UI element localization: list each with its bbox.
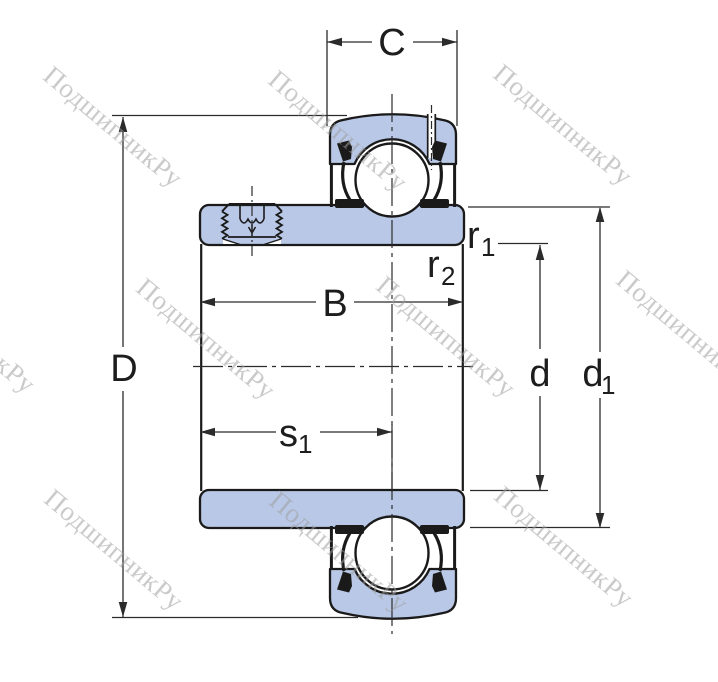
dim-s1: s 1 [200,413,392,459]
dim-D: D [110,116,358,618]
dim-d1-arrow-bottom [596,513,605,528]
dim-label-r2-sub: 2 [441,261,455,291]
dim-label-r1: r [467,215,480,257]
seal-bottom-left-lip [343,533,350,571]
dim-C-arrow-right [442,38,457,47]
dim-label-D: D [110,348,137,390]
dim-D-arrow-bottom [119,602,128,617]
dim-D-arrow-top [119,117,128,132]
dim-C-arrow-left [327,38,342,47]
dim-s1-arrow-right [377,428,392,437]
label-r2: r 2 [427,244,455,291]
dim-B: B [200,283,463,325]
dim-d: d [470,244,551,491]
dim-label-C: C [378,22,405,64]
dim-d1-arrow-top [596,207,605,222]
bearing-parts [193,94,473,634]
dim-d-arrow-top [536,245,545,260]
bearing-cross-section-drawing: C D B s 1 [0,0,718,682]
seal-bottom-right-lip [434,533,441,571]
dim-label-s1: s [279,413,298,455]
dim-label-s1-sub: 1 [298,429,312,459]
seal-bottom-left-foot [335,525,364,534]
inner-ring-bottom-band [200,490,464,528]
dim-label-r1-sub: 1 [481,232,495,262]
dim-label-d: d [529,353,550,395]
bearing-diagram: C D B s 1 [0,0,718,682]
seal-top-right-lip [434,162,441,200]
seal-bottom-right-foot [420,525,449,534]
seal-top-left-lip [343,162,350,200]
dim-label-r2: r [427,244,440,286]
seal-top-left-foot [335,199,364,208]
seal-top-right-foot [420,199,449,208]
label-r1: r 1 [467,215,495,262]
dim-label-d1-sub: 1 [601,370,615,400]
dim-B-arrow-right [448,298,463,307]
dim-label-B: B [322,283,347,325]
dim-d-arrow-bottom [536,475,545,490]
